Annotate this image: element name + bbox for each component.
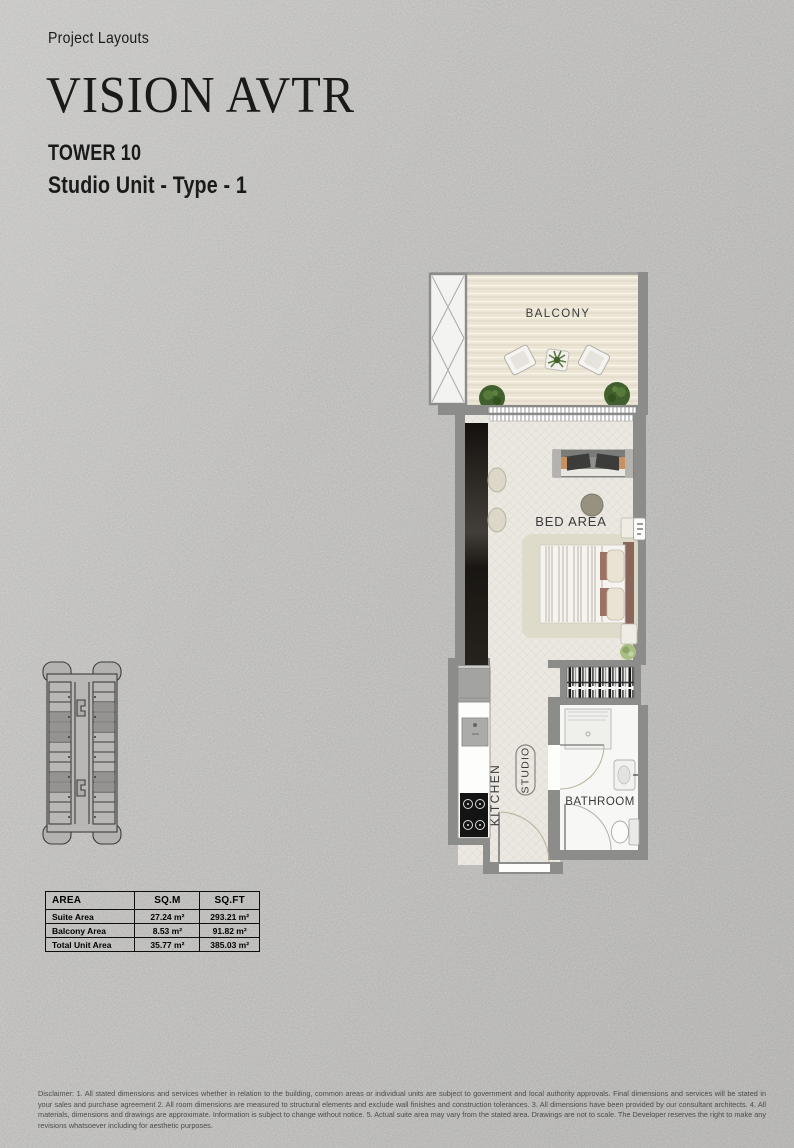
row-label: Total Unit Area xyxy=(46,938,135,952)
row-sqm: 35.77 m² xyxy=(135,938,200,952)
kitchen-label: KITCHEN xyxy=(488,764,502,826)
bed-icon xyxy=(522,534,638,638)
nightstand-icon xyxy=(621,624,637,644)
toilet-icon xyxy=(612,819,640,845)
round-table-icon xyxy=(581,494,603,516)
brochure-page: Project Layouts VISION AVTR TOWER 10 Stu… xyxy=(0,0,794,1148)
fridge-icon xyxy=(458,668,490,702)
header-sqm: SQ.M xyxy=(135,892,200,910)
row-sqft: 91.82 m² xyxy=(200,924,260,938)
area-table: AREA SQ.M SQ.FT Suite Area 27.24 m² 293.… xyxy=(45,891,260,952)
row-sqm: 27.24 m² xyxy=(135,910,200,924)
row-sqm: 8.53 m² xyxy=(135,924,200,938)
pouf-icon xyxy=(488,468,506,492)
kitchen-zone xyxy=(458,666,490,838)
key-plan xyxy=(36,660,128,846)
row-sqft: 293.21 m² xyxy=(200,910,260,924)
row-label: Balcony Area xyxy=(46,924,135,938)
eyebrow-project-layouts: Project Layouts xyxy=(48,30,149,48)
floor-plan: BALCONY BED AREA KITCHEN STUDIO BATHROOM xyxy=(428,268,650,882)
shower-icon xyxy=(565,709,611,749)
balcony-table-plant-icon xyxy=(545,349,570,372)
studio-label: STUDIO xyxy=(519,747,531,794)
page-title: VISION AVTR xyxy=(46,66,355,125)
table-row: Balcony Area 8.53 m² 91.82 m² xyxy=(46,924,260,938)
header-area: AREA xyxy=(46,892,135,910)
table-row: Suite Area 27.24 m² 293.21 m² xyxy=(46,910,260,924)
table-header-row: AREA SQ.M SQ.FT xyxy=(46,892,260,910)
wardrobe-cabinet-icon xyxy=(465,423,488,665)
balcony-label: BALCONY xyxy=(526,308,591,320)
window-band-icon xyxy=(490,415,633,421)
bathroom-zone xyxy=(548,705,639,850)
pouf-icon xyxy=(488,508,506,532)
header-sqft: SQ.FT xyxy=(200,892,260,910)
sink-icon xyxy=(614,760,638,790)
table-row: Total Unit Area 35.77 m² 385.03 m² xyxy=(46,938,260,952)
kitchen-sink-icon xyxy=(462,718,488,746)
wall-unit-icon xyxy=(634,518,646,540)
tower-subtitle: TOWER 10 xyxy=(48,140,141,166)
disclaimer-text: Disclaimer: 1. All stated dimensions and… xyxy=(38,1089,766,1131)
sofa-icon xyxy=(553,450,633,477)
plant-icon xyxy=(620,644,636,660)
row-sqft: 385.03 m² xyxy=(200,938,260,952)
window-panel-icon xyxy=(430,274,466,404)
bathroom-label: BATHROOM xyxy=(565,796,635,808)
balcony-zone xyxy=(430,272,648,415)
row-label: Suite Area xyxy=(46,910,135,924)
sliding-window-icon xyxy=(488,407,636,413)
cooktop-icon xyxy=(460,793,488,837)
bed-area-label: BED AREA xyxy=(535,514,606,529)
plant-icon xyxy=(604,382,630,408)
unit-type-subtitle: Studio Unit - Type - 1 xyxy=(48,172,247,200)
closet-icon xyxy=(560,660,641,705)
